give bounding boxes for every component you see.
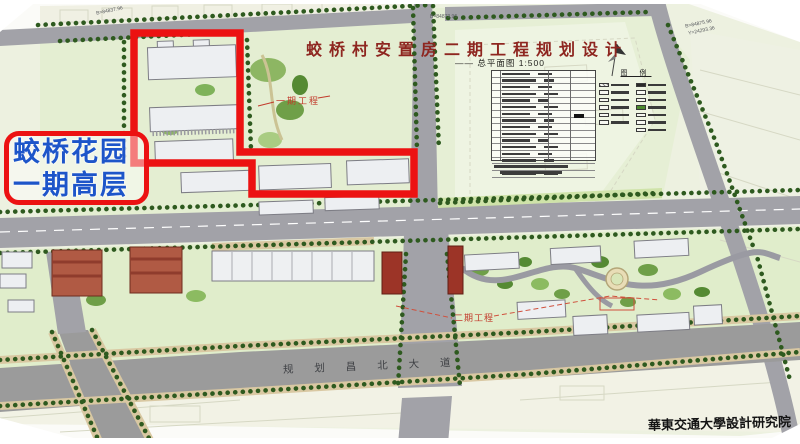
legend-swatch-outline	[636, 98, 646, 103]
legend-item	[636, 96, 673, 104]
legend-label-bar	[611, 91, 629, 94]
indicator-table	[491, 70, 596, 161]
slide-canvas: 蛟桥村安置房二期工程规划设计 —— 总平面图 1:500 蛟桥花园 一期高层 一…	[0, 0, 800, 444]
legend-label-bar	[648, 129, 666, 132]
legend-label-bar	[611, 99, 629, 102]
table-row	[492, 71, 595, 78]
site-plan-map	[0, 0, 800, 444]
callout-line1: 蛟桥花园	[13, 136, 153, 169]
table-row	[492, 98, 595, 105]
callout-line2: 一期高层	[13, 169, 153, 202]
legend-item	[599, 119, 636, 127]
table-row	[492, 138, 595, 145]
table-note-line	[494, 165, 568, 168]
legend-label-bar	[611, 84, 629, 87]
legend-label-bar	[648, 91, 666, 94]
table-row	[492, 158, 595, 165]
legend-item	[636, 126, 673, 134]
legend-label-bar	[611, 121, 629, 124]
legend-label-bar	[648, 84, 666, 87]
legend-item	[599, 104, 636, 112]
table-dark-swatch	[574, 114, 584, 118]
legend-swatch-outline	[636, 128, 646, 133]
legend-swatch-outline	[636, 120, 646, 125]
legend-swatch-dark	[636, 83, 646, 88]
legend-label-bar	[648, 114, 666, 117]
phase1-label: 一期工程	[276, 94, 320, 107]
legend-label-bar	[648, 106, 666, 109]
legend-column-left	[599, 81, 636, 134]
table-divider	[548, 71, 549, 160]
table-row	[492, 104, 595, 111]
legend-item	[599, 96, 636, 104]
legend-swatch-outline	[599, 90, 609, 95]
legend-label-bar	[648, 121, 666, 124]
legend-swatch-outline	[599, 120, 609, 125]
table-note-line	[500, 171, 562, 174]
legend-swatch-outline	[599, 105, 609, 110]
phase2-label: 二期工程	[454, 311, 494, 324]
table-divider	[500, 71, 501, 160]
legend-item	[636, 119, 673, 127]
table-row	[492, 124, 595, 131]
table-row	[492, 84, 595, 91]
legend-item	[599, 89, 636, 97]
table-row	[492, 91, 595, 98]
legend-column-right	[636, 81, 673, 134]
legend-item	[636, 111, 673, 119]
circular-plaza	[606, 268, 628, 290]
legend-label-bar	[611, 106, 629, 109]
legend-item	[599, 81, 636, 89]
legend-swatch-outline	[636, 113, 646, 118]
callout-label: 蛟桥花园 一期高层	[13, 136, 153, 202]
legend-item	[599, 111, 636, 119]
legend-label-bar	[611, 114, 629, 117]
legend-swatch-outline	[599, 98, 609, 103]
map-legend: 图 例	[599, 68, 673, 134]
plan-subtitle: —— 总平面图 1:500	[425, 57, 575, 69]
legend-item	[636, 104, 673, 112]
legend-label-bar	[648, 99, 666, 102]
table-row	[492, 144, 595, 151]
table-row	[492, 151, 595, 158]
survey-marker: B=84872.96	[430, 14, 457, 20]
table-divider	[570, 71, 571, 160]
table-row	[492, 131, 595, 138]
design-institute-signature: 華東交通大學設計研究院	[648, 411, 791, 434]
legend-title: 图 例	[599, 68, 673, 78]
legend-swatch-green	[636, 105, 646, 110]
table-row	[492, 118, 595, 125]
legend-item	[636, 81, 673, 89]
legend-swatch-hatched	[599, 83, 609, 88]
legend-item	[636, 89, 673, 97]
legend-swatch-outline	[636, 90, 646, 95]
legend-swatch-outline	[599, 113, 609, 118]
table-row	[492, 78, 595, 85]
